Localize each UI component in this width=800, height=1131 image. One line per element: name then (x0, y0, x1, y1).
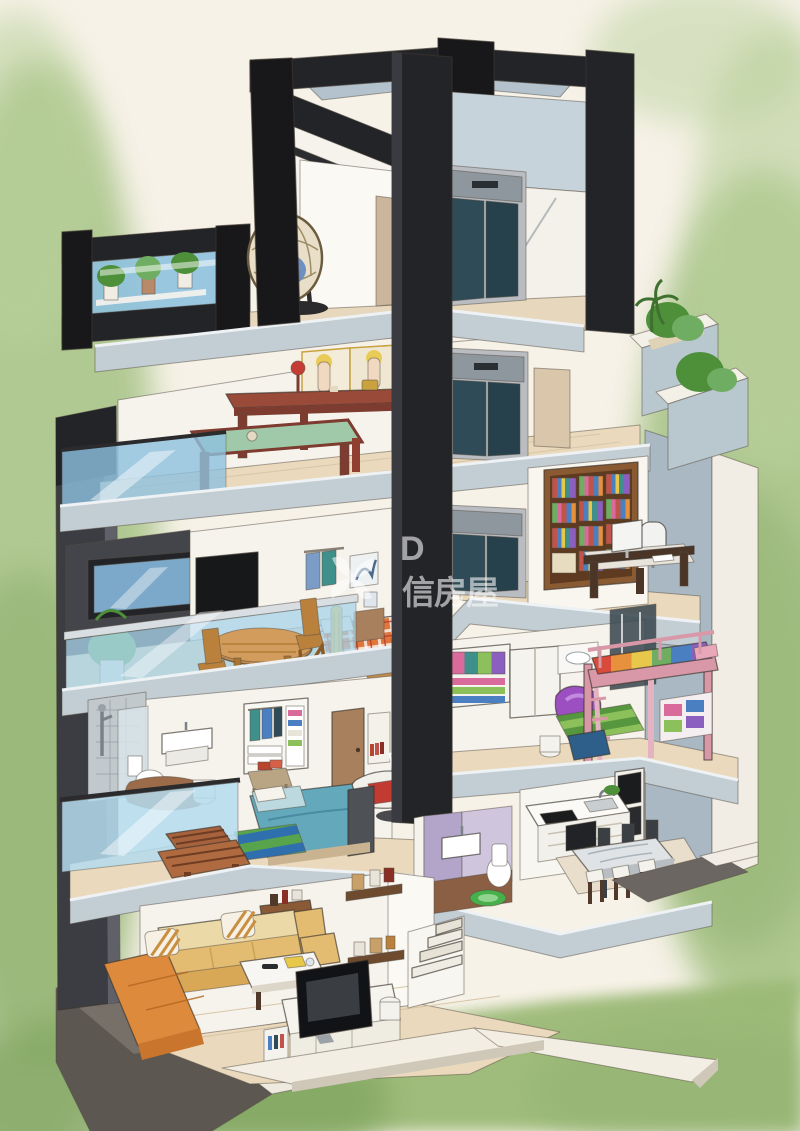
watermark-glyph: D (400, 530, 425, 568)
remote (262, 964, 278, 969)
elevator-tea-level (446, 348, 528, 462)
oven (566, 821, 596, 851)
round-stool (380, 1002, 400, 1020)
stairs (408, 916, 464, 1008)
house-cutaway-svg: D 信房屋 (0, 0, 800, 1131)
tissue-box (284, 956, 306, 968)
right-column (586, 50, 634, 334)
cutaway-illustration: D 信房屋 (0, 0, 800, 1131)
wall-tv (196, 552, 258, 614)
cube-ottoman (568, 730, 610, 760)
tea-level-door (534, 368, 570, 448)
censer (362, 380, 378, 390)
striped-pillow (144, 928, 181, 959)
striped-pillow (220, 910, 257, 941)
bucket (540, 736, 560, 752)
candle-lamp (291, 361, 305, 375)
nightstand (354, 608, 384, 642)
colorful-wardrobe (446, 644, 510, 708)
monitor (612, 520, 642, 552)
counter-plant (604, 785, 620, 795)
watermark-text: 信房屋 (402, 574, 498, 611)
left-penthouse-column (250, 58, 300, 326)
elevator-penthouse (446, 165, 526, 306)
